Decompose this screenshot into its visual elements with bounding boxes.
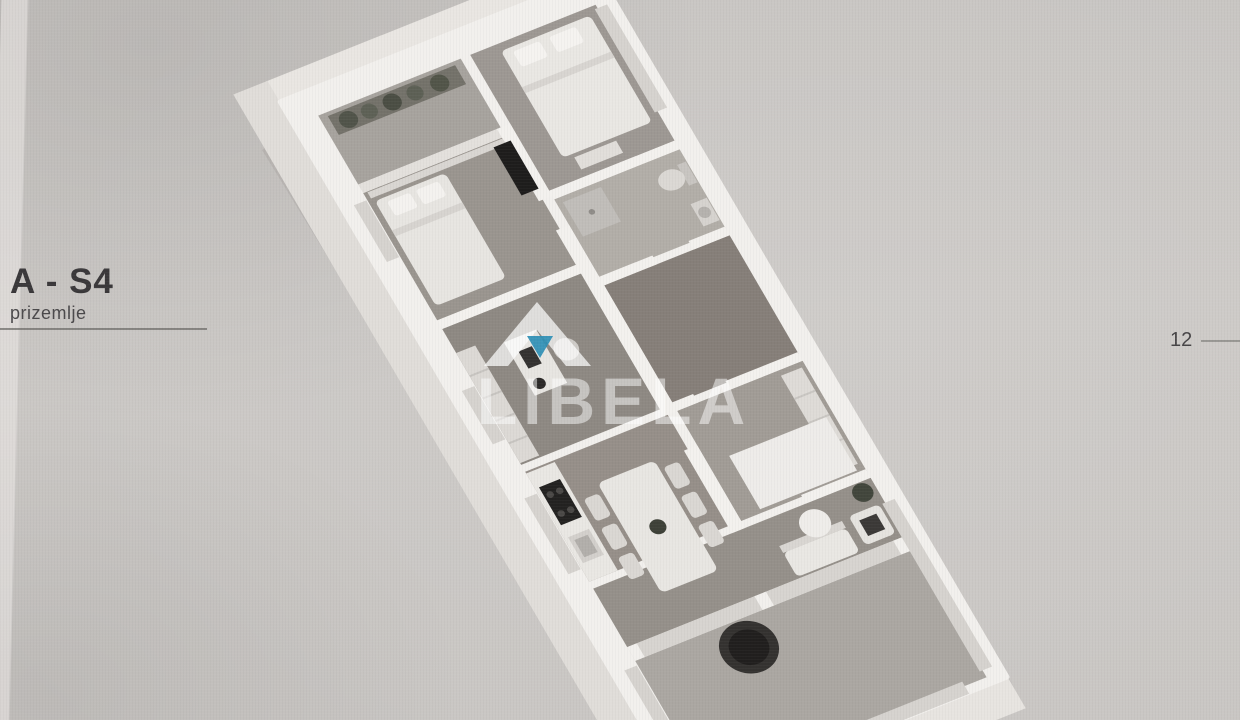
page-number-line bbox=[1201, 340, 1240, 342]
floorplan-render: LIBELA bbox=[0, 0, 1240, 720]
floor-label: prizemlje bbox=[10, 303, 114, 324]
watermark-text: LIBELA bbox=[477, 364, 751, 438]
unit-label: A - S4 bbox=[10, 264, 114, 301]
brochure-page-photo: LIBELA A - S4 prizemlje 12 bbox=[0, 0, 1240, 720]
page-number: 12 bbox=[1170, 329, 1192, 352]
divider-line-left bbox=[0, 328, 207, 330]
apartment-block bbox=[233, 0, 1031, 720]
label-block: A - S4 prizemlje bbox=[10, 264, 114, 324]
